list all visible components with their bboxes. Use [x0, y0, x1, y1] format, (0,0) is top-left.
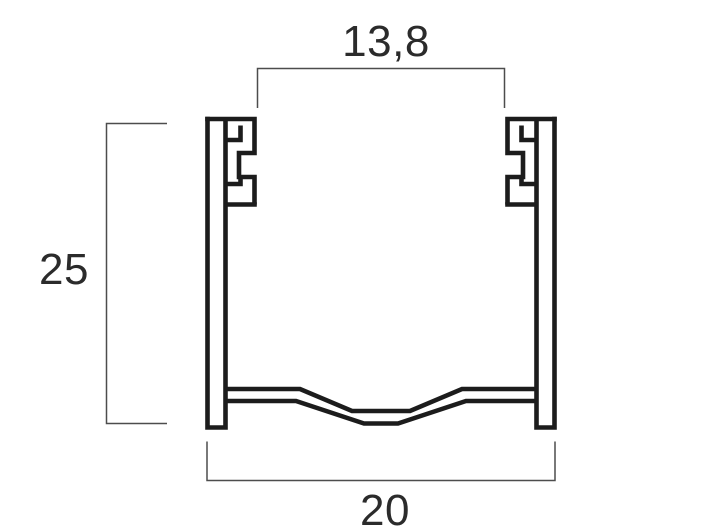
right-hook-outer-zigzag [508, 119, 557, 205]
dim-bracket-top-width [258, 69, 505, 109]
left-hook-outer-zigzag [205, 119, 254, 205]
profile-cross-section [205, 117, 557, 428]
left-wall-outline [208, 117, 226, 428]
dimension-labels: 13,8 25 20 [39, 17, 430, 532]
dimension-lines [107, 69, 556, 481]
dim-bracket-overall-width [207, 442, 555, 481]
dim-label-overall-width: 20 [360, 486, 410, 532]
profile-drawing: 13,8 25 20 [0, 0, 710, 532]
right-wall-outline [537, 117, 555, 428]
dim-label-top-inner-width: 13,8 [342, 17, 430, 66]
dim-label-height: 25 [39, 245, 89, 294]
technical-drawing-canvas: 13,8 25 20 [0, 0, 710, 532]
dim-bracket-height [107, 124, 168, 424]
